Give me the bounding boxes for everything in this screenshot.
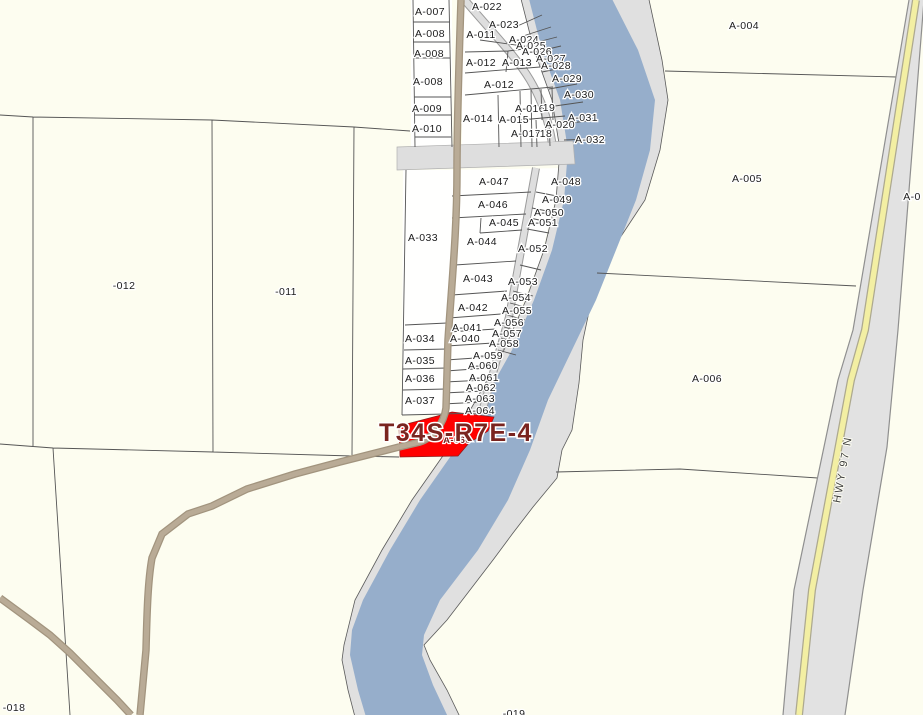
parcel-label-A-051: A-051 xyxy=(528,217,558,229)
parcel-label-A-010: A-010 xyxy=(412,123,442,135)
parcel-label-A-036: A-036 xyxy=(405,373,435,385)
parcel-label-A-013: A-013 xyxy=(502,57,532,69)
parcel-label--018: -018 xyxy=(3,702,26,714)
parcel-label-A-034: A-034 xyxy=(405,333,435,345)
parcel-label-A-012: A-012 xyxy=(466,57,496,69)
parcel-label--019: -019 xyxy=(503,708,526,715)
parcel-label-A-053: A-053 xyxy=(508,276,538,288)
parcel-label-A-048: A-048 xyxy=(551,176,581,188)
parcel-label--011: -011 xyxy=(275,286,297,298)
parcel-label-A-004: A-004 xyxy=(729,20,759,32)
parcel-label-A-063: A-063 xyxy=(465,393,495,405)
parcel-label-A-030: A-030 xyxy=(564,89,594,101)
parcel-label-A-007: A-007 xyxy=(415,6,445,18)
parcel-label-A-055: A-055 xyxy=(502,305,532,317)
selected-parcel-title: T34S-R7E-4 xyxy=(379,419,533,447)
parcel-label-A-043: A-043 xyxy=(463,273,493,285)
parcel-label-A-040: A-040 xyxy=(450,333,480,345)
parcel-label-A-029: A-029 xyxy=(552,73,582,85)
parcel-label-A-008: A-008 xyxy=(415,28,445,40)
map-canvas[interactable]: A-007A-008A-008A-008A-009A-010A-022A-023… xyxy=(0,0,923,715)
parcel-label-A-011: A-011 xyxy=(466,29,495,41)
parcel-label-A-054: A-054 xyxy=(501,292,531,304)
parcel-label-A-047: A-047 xyxy=(479,176,509,188)
parcel-label-A-042: A-042 xyxy=(458,302,488,314)
parcel-label-A-009: A-009 xyxy=(412,103,442,115)
parcel-label-18: 18 xyxy=(540,128,552,140)
parcel-label-A-058: A-058 xyxy=(489,338,519,350)
parcel-label-A-012: A-012 xyxy=(484,79,514,91)
parcel-label-A-046: A-046 xyxy=(478,199,508,211)
parcel-label-A-037: A-037 xyxy=(405,395,435,407)
parcel-label-A-008: A-008 xyxy=(413,76,443,88)
parcel-label-A-032: A-032 xyxy=(575,134,605,146)
parcel-label-A-022: A-022 xyxy=(472,1,502,13)
parcel-label-A-006: A-006 xyxy=(692,373,722,385)
parcel-label-A-064: A-064 xyxy=(465,405,495,417)
parcel-label-A-033: A-033 xyxy=(408,232,438,244)
parcel-label-A-044: A-044 xyxy=(467,236,497,248)
parcel-label-A-035: A-035 xyxy=(405,355,435,367)
parcel-label--012: -012 xyxy=(113,280,136,292)
parcel-label-A-045: A-045 xyxy=(489,217,519,229)
parcel-label-A-028: A-028 xyxy=(541,60,571,72)
parcel-label-A-008: A-008 xyxy=(414,48,444,60)
parcel-label-A-049: A-049 xyxy=(542,194,572,206)
parcel-label-A-0: A-0 xyxy=(903,191,921,203)
parcel-label-19: 19 xyxy=(543,102,555,114)
parcel-label-A-060: A-060 xyxy=(468,360,498,372)
parcel-label-A-052: A-052 xyxy=(518,243,548,255)
parcel-label-A-017: A-017 xyxy=(511,128,541,140)
parcel-label-A-014: A-014 xyxy=(463,113,493,125)
parcel-label-A-015: A-015 xyxy=(499,114,529,126)
parcel-label-A-005: A-005 xyxy=(732,173,762,185)
